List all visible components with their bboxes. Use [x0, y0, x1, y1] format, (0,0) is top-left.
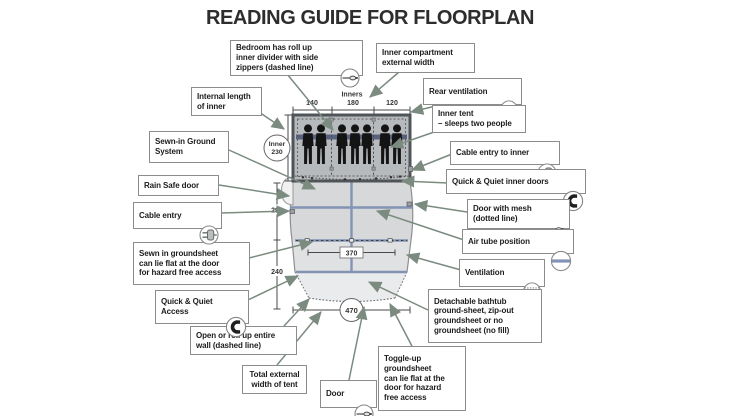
zipper-icon — [339, 47, 361, 69]
callout-quick-quiet-inner-doors: Quick & Quiet inner doors — [446, 169, 586, 194]
callout-toggle-up-groundsheet: Toggle-up groundsheet can lie flat at th… — [378, 346, 466, 411]
floorplan-diagram: Inners 140 180 120 Inner 230 290 240 370 — [0, 0, 740, 416]
width-120: 120 — [386, 100, 398, 107]
ventilation-solid-icon — [498, 81, 520, 103]
callout-label: Detachable bathtub ground-sheet, zip-out… — [434, 297, 514, 336]
callout-inner-compartment-external-width: Inner compartment external width — [376, 43, 475, 73]
callout-sewn-in-ground-system: Sewn-in Ground System — [149, 131, 229, 163]
callout-quick-quiet-access: Quick & Quiet Access — [155, 290, 249, 324]
callout-label: Rain Safe door — [144, 181, 199, 191]
callout-door-with-mesh: Door with mesh (dotted line) — [467, 199, 570, 229]
callout-ventilation: Ventilation — [459, 259, 545, 287]
callout-label: Ventilation — [465, 268, 504, 278]
callout-label: Air tube position — [468, 237, 530, 247]
callout-cable-entry: Cable entry — [133, 202, 222, 229]
callout-label: Inner compartment external width — [382, 48, 453, 68]
mesh-door-icon — [546, 203, 568, 225]
callout-internal-length-of-inner: Internal length of inner — [191, 87, 262, 116]
callout-label: Sewn-in Ground System — [155, 137, 215, 157]
plug-icon — [536, 142, 558, 164]
magnet-icon — [225, 296, 247, 318]
callout-label: Rear ventilation — [429, 87, 487, 97]
callout-detachable-bathtub-groundsheet: Detachable bathtub ground-sheet, zip-out… — [428, 289, 542, 343]
callout-label: Total external width of tent — [249, 370, 299, 390]
callout-inner-tent: Inner tent – sleeps two people — [432, 105, 526, 133]
callout-total-external-width: Total external width of tent — [242, 365, 307, 394]
length-240: 240 — [271, 269, 283, 276]
ventilation-dotted-icon — [521, 262, 543, 284]
callout-label: Quick & Quiet Access — [161, 297, 213, 317]
tent-bedroom — [293, 115, 410, 181]
inner-230-line1: Inner — [269, 141, 286, 148]
callout-air-tube-position: Air tube position — [462, 229, 574, 254]
width-370: 370 — [346, 251, 358, 258]
magnet-icon — [562, 171, 584, 193]
callout-label: Quick & Quiet inner doors — [452, 177, 549, 187]
callout-label: Toggle-up groundsheet can lie flat at th… — [384, 354, 445, 403]
air-tube-icon — [550, 231, 572, 253]
callout-label: Door with mesh (dotted line) — [473, 204, 532, 224]
callout-cable-entry-to-inner: Cable entry to inner — [450, 141, 560, 165]
callout-rear-ventilation: Rear ventilation — [423, 78, 522, 105]
callout-label: Internal length of inner — [197, 92, 251, 112]
callout-rain-safe-door: Rain Safe door — [138, 175, 219, 196]
callout-label: Inner tent – sleeps two people — [438, 109, 512, 129]
callout-bedroom-divider: Bedroom has roll up inner divider with s… — [230, 40, 363, 76]
callout-label: Door — [326, 389, 344, 399]
callout-door: Door — [320, 380, 377, 408]
inner-230-line2: 230 — [271, 149, 283, 156]
plug-icon — [198, 205, 220, 227]
width-470: 470 — [345, 306, 358, 315]
callout-label: Cable entry to inner — [456, 148, 529, 158]
callout-sewn-in-groundsheet: Sewn in groundsheet can lie flat at the … — [133, 242, 250, 285]
callout-label: Cable entry — [139, 211, 181, 221]
zipper-icon — [353, 383, 375, 405]
reading-guide-page: READING GUIDE FOR FLOORPLAN — [0, 0, 740, 416]
callout-label: Bedroom has roll up inner divider with s… — [236, 43, 318, 72]
